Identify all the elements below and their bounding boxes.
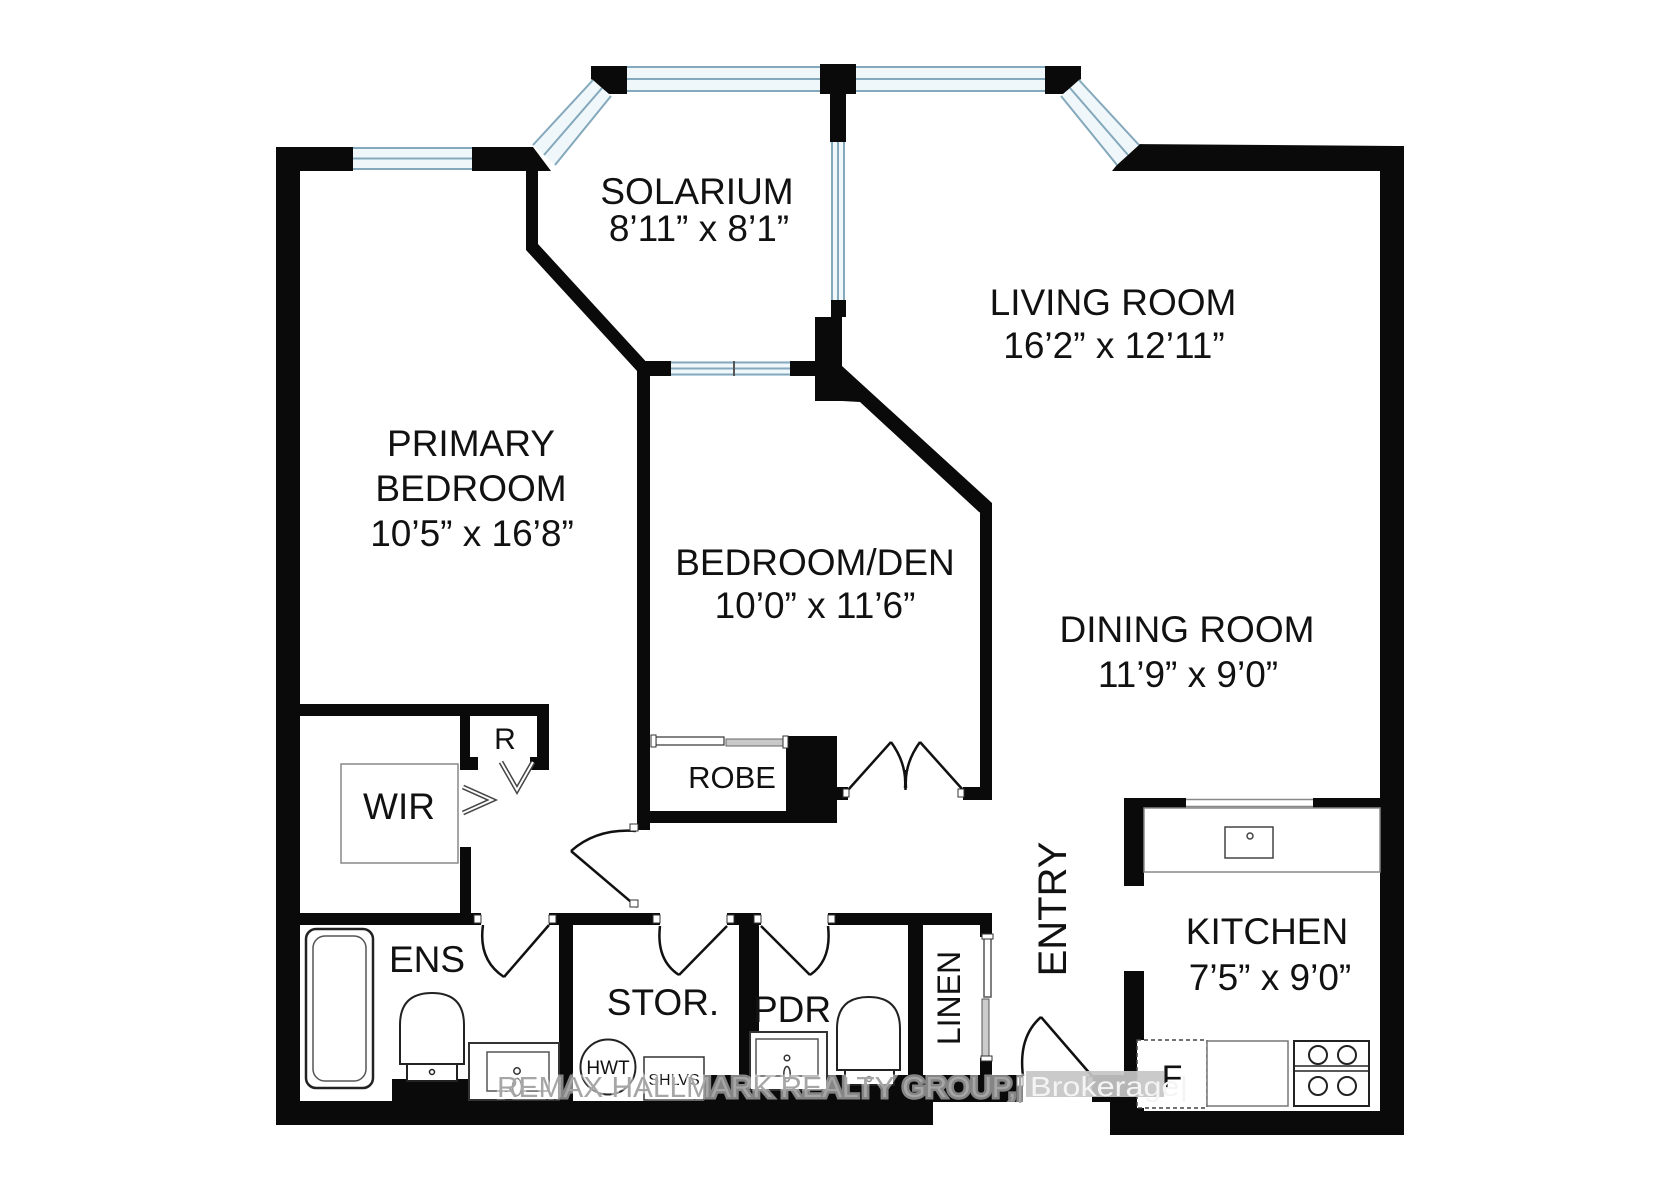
svg-text:KITCHEN: KITCHEN (1186, 911, 1348, 952)
svg-text:DINING ROOM: DINING ROOM (1060, 609, 1315, 650)
svg-text:PRIMARY: PRIMARY (387, 423, 555, 464)
svg-text:ROBE: ROBE (688, 760, 776, 795)
svg-text:BEDROOM/DEN: BEDROOM/DEN (675, 542, 955, 583)
svg-text:16’2” x 12’11”: 16’2” x 12’11” (1003, 325, 1224, 366)
svg-text:STOR.: STOR. (607, 982, 719, 1023)
svg-text:Brokerage|: Brokerage| (1030, 1071, 1188, 1102)
svg-text:BEDROOM: BEDROOM (375, 468, 566, 509)
svg-text:LINEN: LINEN (931, 951, 967, 1045)
svg-text:ENS: ENS (389, 939, 465, 980)
svg-text:REMAX HALLMARK REALTY GROUP,|: REMAX HALLMARK REALTY GROUP,| (497, 1072, 1024, 1104)
svg-text:PDR: PDR (753, 989, 831, 1030)
svg-text:10’5” x 16’8”: 10’5” x 16’8” (370, 513, 574, 554)
svg-text:7’5” x 9’0”: 7’5” x 9’0” (1189, 957, 1351, 998)
svg-text:LIVING ROOM: LIVING ROOM (990, 282, 1237, 323)
svg-text:WIR: WIR (363, 786, 435, 827)
svg-text:ENTRY: ENTRY (1031, 842, 1075, 977)
svg-text:8’11” x 8’1”: 8’11” x 8’1” (609, 208, 789, 249)
svg-text:10’0” x 11’6”: 10’0” x 11’6” (715, 585, 916, 626)
svg-text:R: R (494, 723, 516, 756)
svg-text:11’9” x 9’0”: 11’9” x 9’0” (1098, 654, 1278, 695)
svg-text:SOLARIUM: SOLARIUM (600, 171, 793, 212)
